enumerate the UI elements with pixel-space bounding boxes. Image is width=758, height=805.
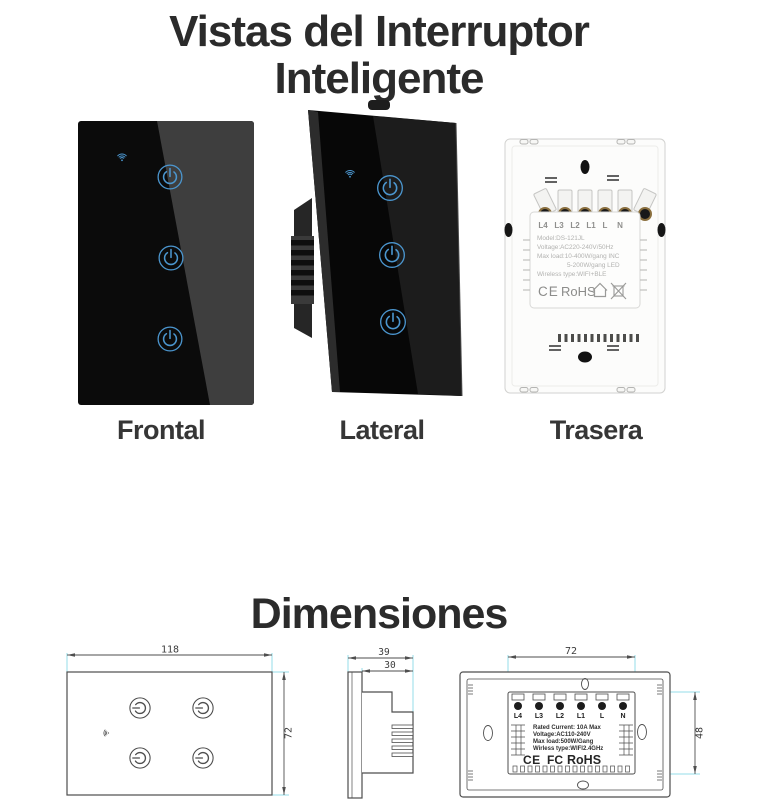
svg-text:L4: L4 bbox=[514, 713, 522, 720]
rohs-mark: RoHS bbox=[567, 753, 601, 767]
glass-profile bbox=[348, 672, 362, 798]
lateral-photo bbox=[288, 98, 468, 400]
svg-text:L1: L1 bbox=[586, 221, 596, 230]
height-value: 48 bbox=[695, 727, 706, 739]
width-value: 72 bbox=[565, 646, 577, 657]
spec-text: Rated Current: 10A Max Voltage:AC110-240… bbox=[533, 725, 603, 752]
page-title-line1: Vistas del Interruptor bbox=[0, 8, 758, 55]
svg-text:L3: L3 bbox=[554, 221, 564, 230]
left-notch bbox=[505, 223, 513, 237]
rohs-mark: RoHS bbox=[561, 284, 596, 299]
spec-voltage: Voltage:AC220-240V/50Hz bbox=[537, 244, 613, 251]
spec-wireless: Wirless type:WIFI2.4GHz bbox=[533, 746, 603, 752]
svg-text:N: N bbox=[620, 713, 625, 720]
frontal-photo bbox=[78, 121, 254, 405]
bottom-oval-slot bbox=[578, 352, 592, 363]
svg-text:L1: L1 bbox=[577, 713, 585, 720]
page-title-line2: Inteligente bbox=[0, 55, 758, 102]
width-value: 118 bbox=[161, 645, 179, 656]
svg-text:L: L bbox=[603, 221, 608, 230]
height-value: 72 bbox=[284, 727, 295, 739]
dimensions-title: Dimensiones bbox=[0, 590, 758, 639]
panel-outline bbox=[67, 672, 272, 795]
page-title: Vistas del Interruptor Inteligente bbox=[0, 8, 758, 102]
top-oval-slot bbox=[581, 160, 590, 174]
side-dimension-drawing: 39 30 bbox=[340, 645, 458, 803]
spec-max-load: Max load:500W/Gang bbox=[533, 739, 594, 745]
right-notch bbox=[658, 223, 666, 237]
svg-text:L: L bbox=[600, 713, 605, 720]
trasera-photo: L4 L3 L2 L1 L N Model:DS-121JL Voltage:A… bbox=[504, 138, 666, 394]
spec-wireless: Wireless type:WIFI+BLE bbox=[537, 271, 606, 278]
spec-max-load-2: 5-200W/gang LED bbox=[567, 262, 620, 269]
spec-rated: Rated Current: 10A Max bbox=[533, 725, 601, 731]
total-depth-value: 39 bbox=[378, 647, 390, 658]
ce-mark: CE bbox=[538, 284, 559, 299]
svg-text:N: N bbox=[617, 221, 623, 230]
spec-model: Model:DS-121JL bbox=[537, 235, 585, 242]
ce-mark: CE bbox=[523, 753, 541, 767]
back-dimension-drawing: L4 L3 L2 L1 L N Rated Current: 10A Max V… bbox=[455, 645, 727, 803]
svg-text:L4: L4 bbox=[538, 221, 548, 230]
svg-text:L2: L2 bbox=[556, 713, 564, 720]
fc-mark: FC bbox=[547, 753, 563, 767]
svg-text:L2: L2 bbox=[570, 221, 580, 230]
label-trasera: Trasera bbox=[550, 415, 643, 446]
label-lateral: Lateral bbox=[339, 415, 424, 446]
spec-max-load-1: Max load:10-400W/gang INC bbox=[537, 253, 620, 260]
product-infographic: Vistas del Interruptor Inteligente bbox=[0, 0, 758, 805]
front-dimension-drawing: 118 72 bbox=[60, 645, 295, 803]
label-frontal: Frontal bbox=[117, 415, 205, 446]
svg-text:L3: L3 bbox=[535, 713, 543, 720]
body-depth-value: 30 bbox=[384, 660, 396, 671]
cert-row: CE FC RoHS bbox=[523, 753, 601, 767]
top-edge-tab bbox=[368, 100, 390, 110]
spec-voltage: Voltage:AC110-240V bbox=[533, 732, 591, 738]
